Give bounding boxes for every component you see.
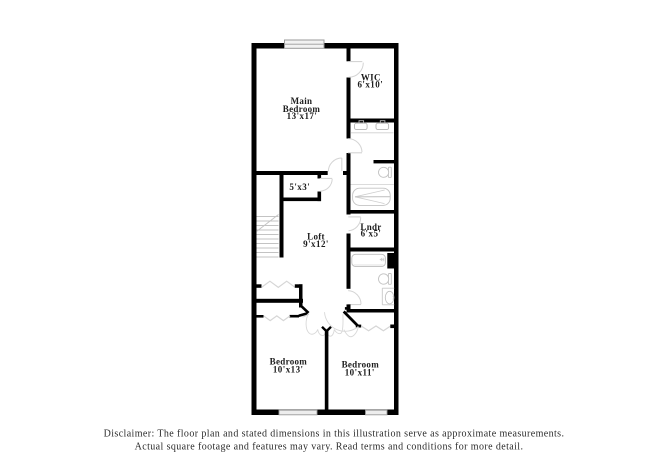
svg-text:6'x5': 6'x5' [361, 229, 382, 239]
svg-text:10'x11': 10'x11' [345, 368, 375, 378]
svg-text:9'x12': 9'x12' [303, 239, 329, 249]
svg-text:13'x17': 13'x17' [287, 111, 318, 121]
svg-text:10'x13': 10'x13' [273, 364, 304, 374]
svg-text:Actual square footage and feat: Actual square footage and features may v… [135, 442, 524, 453]
svg-text:5'x3': 5'x3' [289, 182, 310, 192]
svg-text:6'x10': 6'x10' [357, 80, 383, 90]
svg-text:Disclaimer: The floor plan and: Disclaimer: The floor plan and stated di… [104, 429, 565, 440]
